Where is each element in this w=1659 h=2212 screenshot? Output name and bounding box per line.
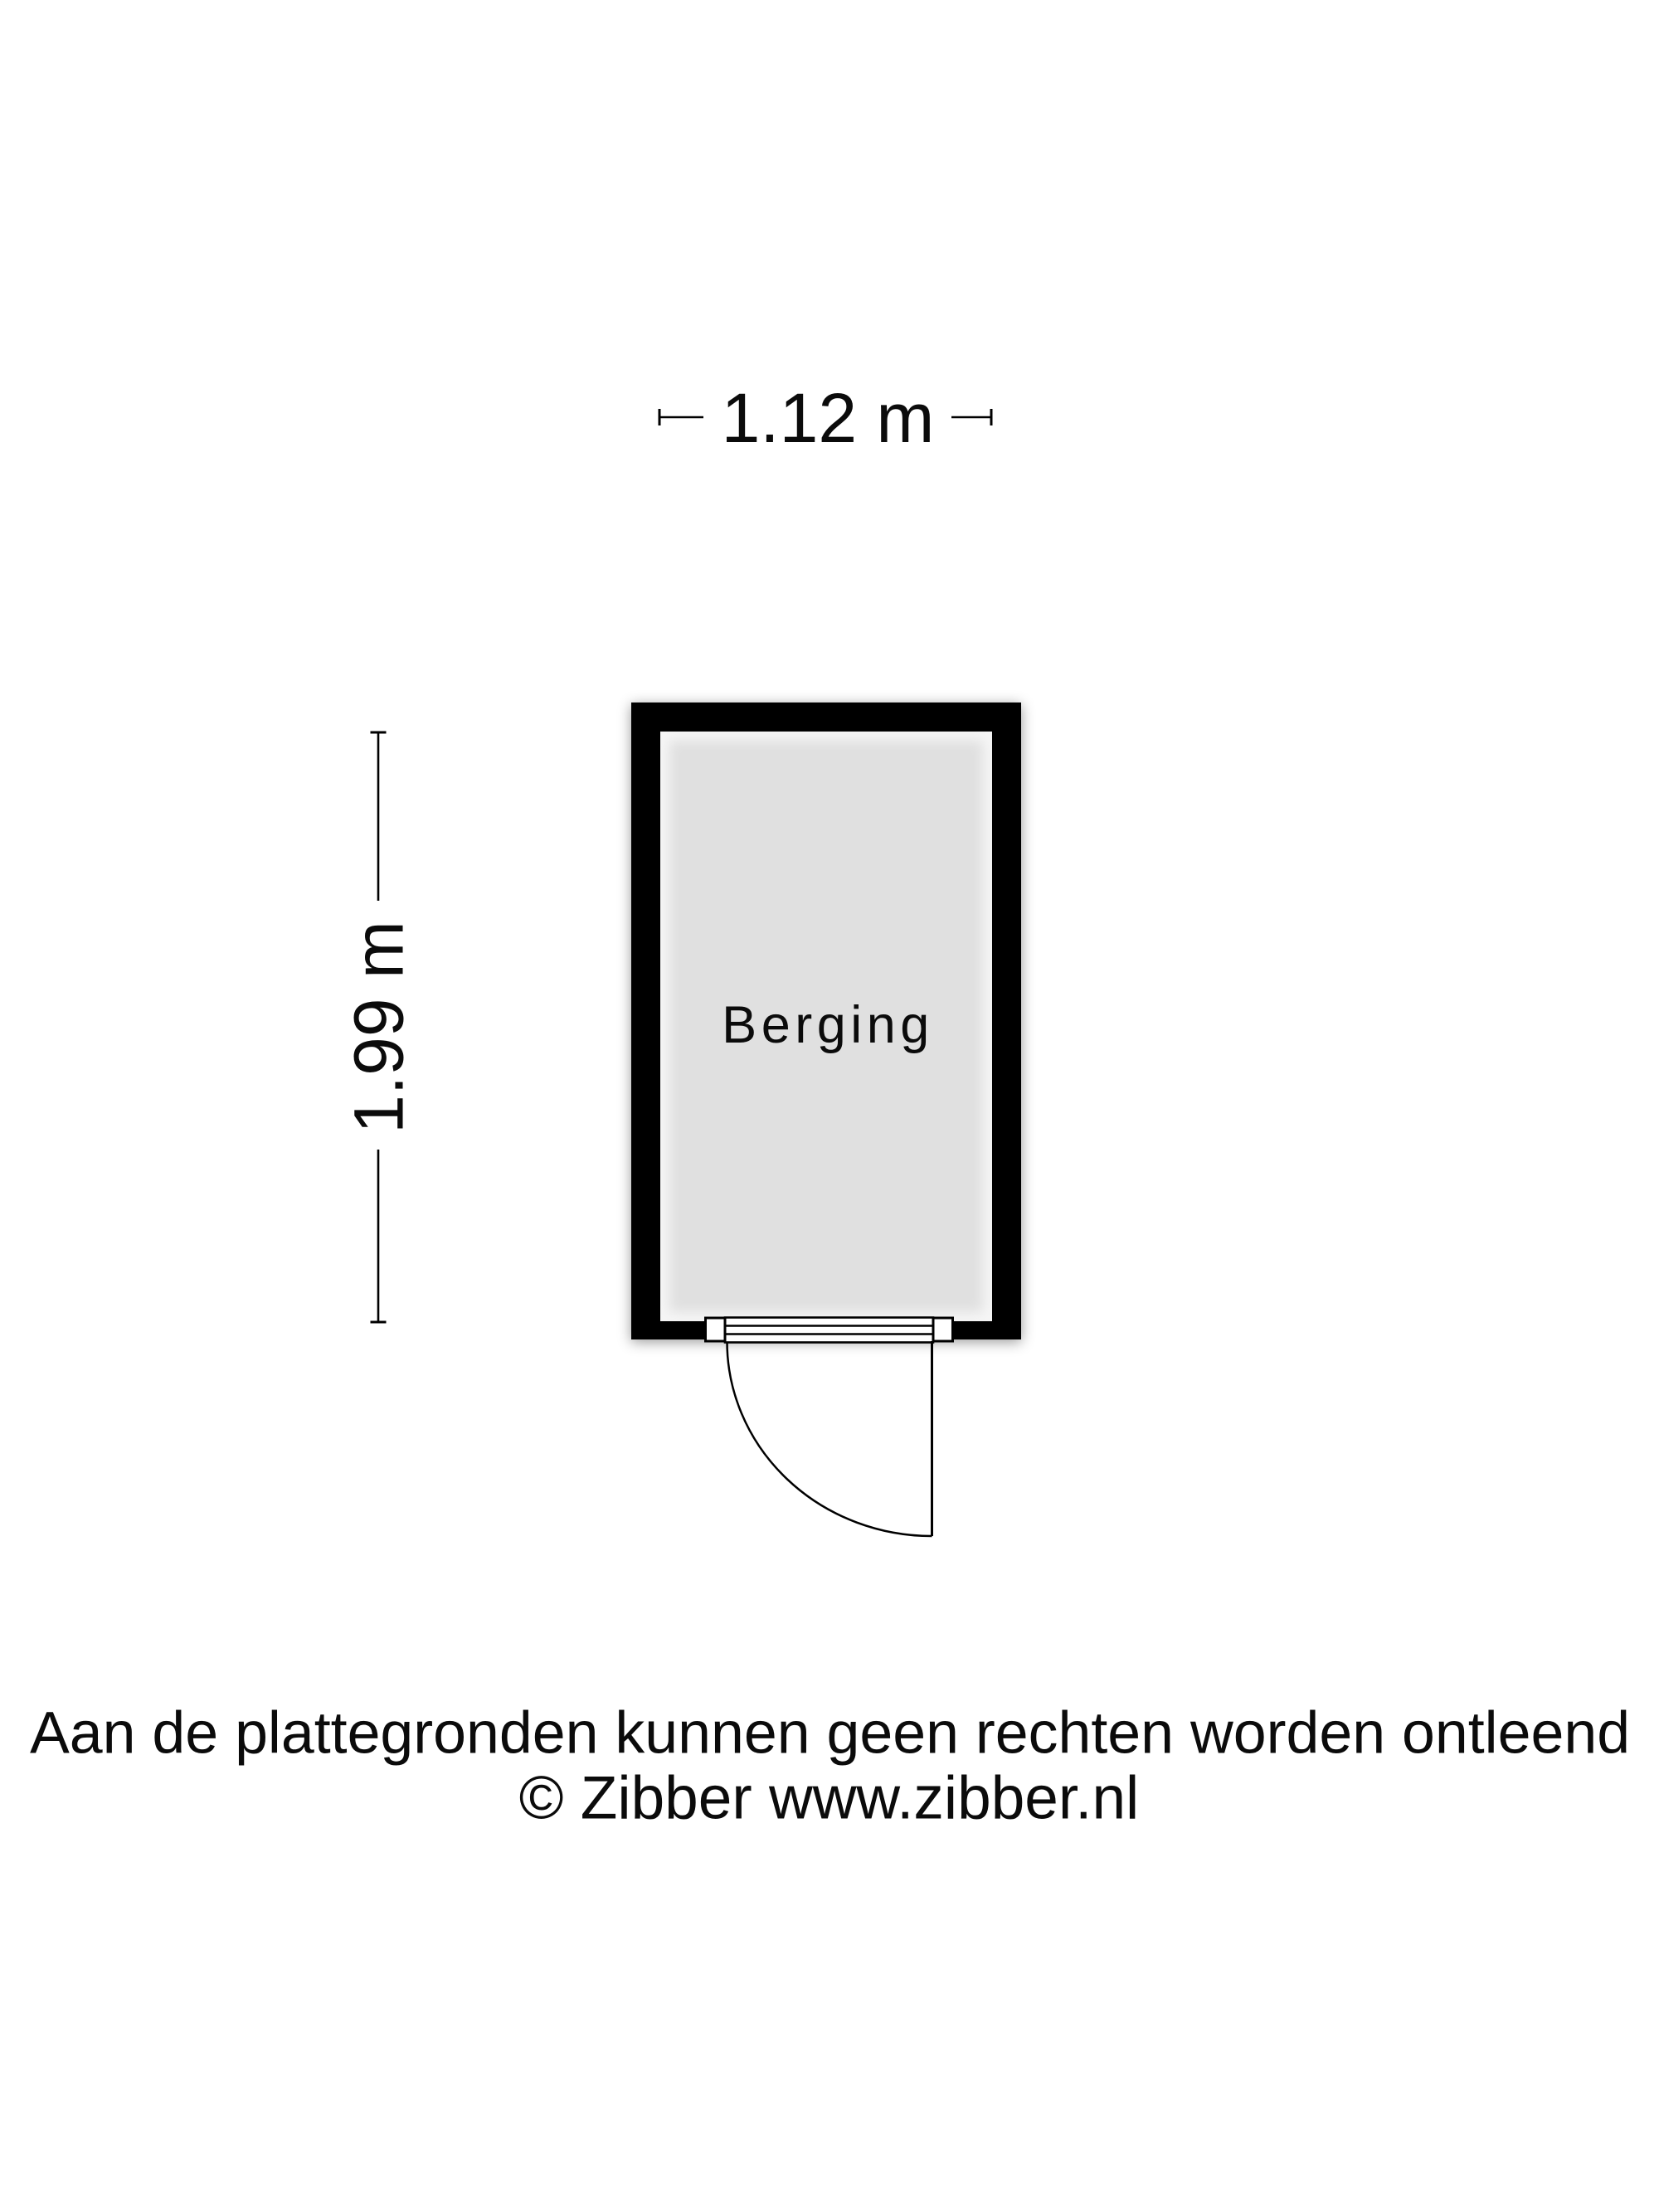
svg-text:© Zibber www.zibber.nl: © Zibber www.zibber.nl xyxy=(519,1765,1140,1832)
svg-text:Berging: Berging xyxy=(722,996,934,1054)
svg-text:1.12 m: 1.12 m xyxy=(722,379,935,457)
svg-text:1.99 m: 1.99 m xyxy=(339,921,417,1134)
svg-text:Aan de plattegronden kunnen ge: Aan de plattegronden kunnen geen rechten… xyxy=(30,1700,1630,1767)
